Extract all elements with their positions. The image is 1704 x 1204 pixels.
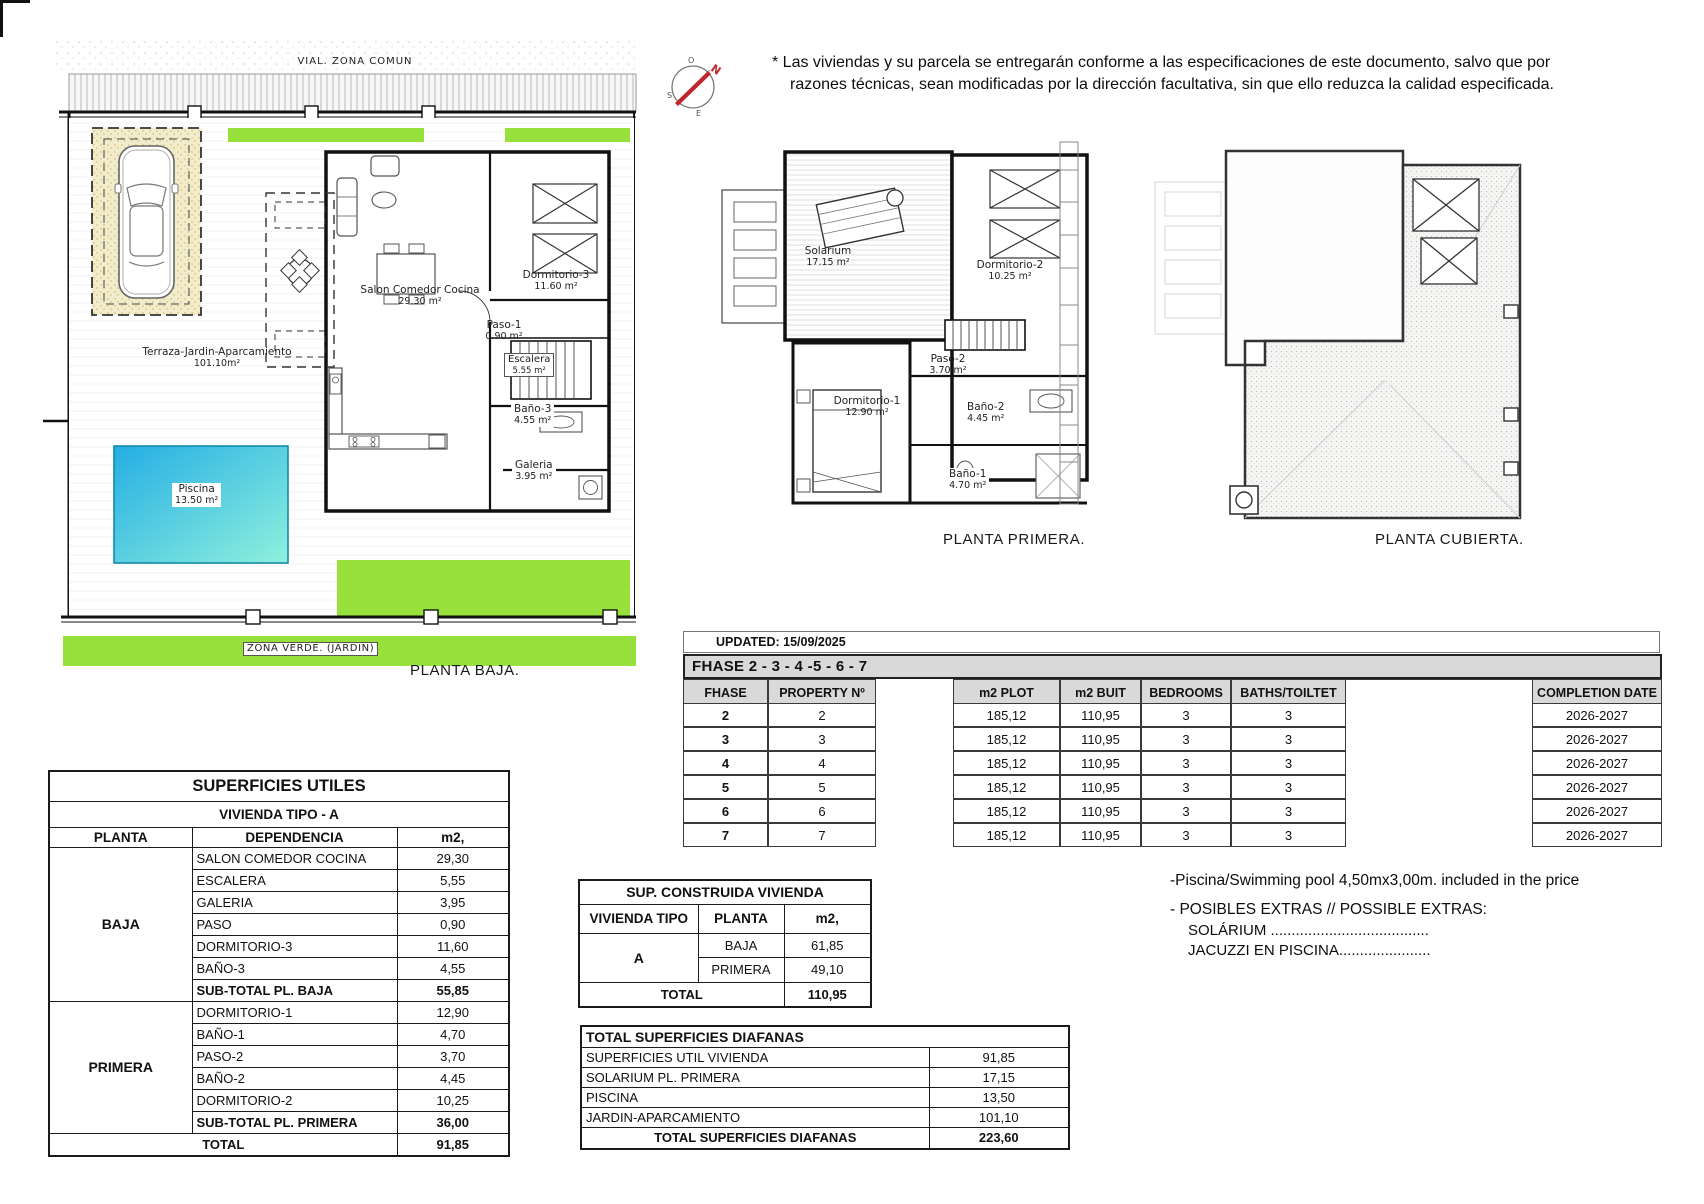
su-row: DORMITORIO-1	[192, 1001, 397, 1023]
col-bedrooms: BEDROOMS	[1141, 679, 1231, 706]
cell: 6	[683, 799, 768, 823]
su-subtotal: SUB-TOTAL PL. PRIMERA	[192, 1111, 397, 1133]
vial-zona-comun-label: VIAL. ZONA COMUN	[293, 56, 417, 68]
su-val: 4,45	[397, 1067, 509, 1089]
su-row: DORMITORIO-2	[192, 1089, 397, 1111]
col-property: PROPERTY Nº	[768, 679, 876, 706]
car-icon	[115, 146, 178, 298]
cell: 2026-2027	[1532, 703, 1662, 727]
cell: 3	[1141, 823, 1231, 847]
extra-solarium: SOLÁRIUM ...............................…	[1188, 922, 1429, 939]
su-subtotal-val: 55,85	[397, 979, 509, 1001]
su-col-dep: DEPENDENCIA	[192, 827, 397, 847]
col-completion: COMPLETION DATE	[1532, 679, 1662, 706]
su-row: BAÑO-1	[192, 1023, 397, 1045]
planta-baja-title: PLANTA BAJA.	[410, 662, 519, 679]
cell: 2	[768, 703, 876, 727]
phase-band: FHASE 2 - 3 - 4 -5 - 6 - 7	[683, 654, 1662, 679]
cell: 2026-2027	[1532, 751, 1662, 775]
su-subtotal-val: 36,00	[397, 1111, 509, 1133]
cell: 2	[683, 703, 768, 727]
planta-primera-drawing	[720, 138, 1100, 518]
stairs	[945, 320, 1025, 350]
planta-cubierta-drawing	[1055, 140, 1535, 525]
bano2-label: Baño-24.45 m²	[964, 401, 1007, 425]
df-val: 91,85	[929, 1047, 1069, 1067]
su-row: BAÑO-2	[192, 1067, 397, 1089]
sc-col-m2: m2,	[784, 904, 871, 933]
cell: 110,95	[1060, 799, 1141, 823]
compass-icon: N O S E	[664, 54, 724, 118]
cell: 2026-2027	[1532, 775, 1662, 799]
cell: 3	[1141, 703, 1231, 727]
su-row: BAÑO-3	[192, 957, 397, 979]
planta-cubierta-title: PLANTA CUBIERTA.	[1375, 531, 1524, 548]
lawn-strip-right	[505, 128, 630, 142]
svg-text:E: E	[696, 109, 701, 118]
cell: 2026-2027	[1532, 727, 1662, 751]
su-val: 11,60	[397, 935, 509, 957]
plan-sheet: { "disclaimer": { "line1": "* Las vivien…	[0, 0, 1704, 1204]
salon-label: Salon Comedor Cocina29.30 m²	[358, 284, 482, 308]
cell: 2026-2027	[1532, 823, 1662, 847]
sc-row: BAJA	[698, 933, 784, 957]
cell: 110,95	[1060, 823, 1141, 847]
cell: 3	[1231, 703, 1346, 727]
pool-note: -Piscina/Swimming pool 4,50mx3,00m. incl…	[1170, 872, 1579, 890]
df-val: 13,50	[929, 1087, 1069, 1107]
cell: 5	[683, 775, 768, 799]
su-subtitle: VIVIENDA TIPO - A	[49, 801, 509, 827]
sc-val: 49,10	[784, 957, 871, 982]
su-total-val: 91,85	[397, 1133, 509, 1156]
cell: 3	[1141, 799, 1231, 823]
updated-date: UPDATED: 15/09/2025	[683, 631, 1660, 653]
sc-title: SUP. CONSTRUIDA VIVIENDA	[579, 880, 871, 904]
df-total-val: 223,60	[929, 1127, 1069, 1149]
cell: 110,95	[1060, 703, 1141, 727]
cell: 7	[683, 823, 768, 847]
su-total: TOTAL	[49, 1133, 397, 1156]
col-fhase: FHASE	[683, 679, 768, 706]
superficies-utiles-table: SUPERFICIES UTILES VIVIENDA TIPO - A PLA…	[48, 770, 510, 1157]
svg-text:O: O	[688, 56, 694, 65]
df-val: 101,10	[929, 1107, 1069, 1127]
su-val: 12,90	[397, 1001, 509, 1023]
su-val: 29,30	[397, 847, 509, 869]
sc-total: TOTAL	[579, 982, 784, 1007]
dormitorio1-label: Dormitorio-112.90 m²	[824, 395, 910, 419]
phase-grid: FHASE PROPERTY Nº m2 PLOT m2 BUIT BEDROO…	[683, 679, 1662, 847]
cell: 185,12	[953, 751, 1060, 775]
df-val: 17,15	[929, 1067, 1069, 1087]
su-val: 4,70	[397, 1023, 509, 1045]
df-total: TOTAL SUPERFICIES DIAFANAS	[581, 1127, 929, 1149]
cell: 3	[1231, 727, 1346, 751]
su-val: 3,95	[397, 891, 509, 913]
df-row: PISCINA	[581, 1087, 929, 1107]
cell: 3	[1231, 799, 1346, 823]
su-subtotal: SUB-TOTAL PL. BAJA	[192, 979, 397, 1001]
su-col-m2: m2,	[397, 827, 509, 847]
cell: 185,12	[953, 799, 1060, 823]
su-row: PASO	[192, 913, 397, 935]
df-row: JARDIN-APARCAMIENTO	[581, 1107, 929, 1127]
df-row: SOLARIUM PL. PRIMERA	[581, 1067, 929, 1087]
dormitorio3-label: Dormitorio-311.60 m²	[516, 269, 596, 293]
lawn-patch	[337, 560, 630, 616]
su-val: 10,25	[397, 1089, 509, 1111]
col-baths: BATHS/TOILTET	[1231, 679, 1346, 706]
cell: 185,12	[953, 775, 1060, 799]
paso1-label: Paso-10.90 m²	[478, 319, 530, 343]
cell: 3	[1141, 727, 1231, 751]
cell: 3	[1141, 751, 1231, 775]
su-row: DORMITORIO-3	[192, 935, 397, 957]
col-built: m2 BUIT	[1060, 679, 1141, 706]
cell: 3	[1141, 775, 1231, 799]
galeria-label: Galeria3.95 m²	[512, 459, 556, 483]
roof-terrace	[1226, 151, 1403, 365]
diafanas-table: TOTAL SUPERFICIES DIAFANAS SUPERFICIES U…	[580, 1025, 1070, 1150]
cell: 6	[768, 799, 876, 823]
escalera-label: Escalera 5.55 m²	[504, 353, 554, 377]
su-val: 5,55	[397, 869, 509, 891]
su-row: GALERIA	[192, 891, 397, 913]
planta-primera-title: PLANTA PRIMERA.	[943, 531, 1085, 548]
su-group-baja: BAJA	[49, 847, 192, 1001]
cell: 4	[683, 751, 768, 775]
cell: 2026-2027	[1532, 799, 1662, 823]
extra-jacuzzi: JACUZZI EN PISCINA......................	[1188, 942, 1431, 959]
su-row: PASO-2	[192, 1045, 397, 1067]
cell: 3	[768, 727, 876, 751]
sheet-corner-mark-h	[0, 0, 30, 3]
sc-val: 61,85	[784, 933, 871, 957]
df-title: TOTAL SUPERFICIES DIAFANAS	[581, 1026, 1069, 1047]
zona-verde-label: ZONA VERDE. (JARDIN)	[243, 642, 378, 656]
disclaimer-line2: razones técnicas, sean modificadas por l…	[790, 74, 1642, 96]
cell: 3	[683, 727, 768, 751]
cell: 3	[1231, 775, 1346, 799]
disclaimer: * Las viviendas y su parcela se entregar…	[772, 52, 1642, 96]
cell: 3	[1231, 823, 1346, 847]
cell: 110,95	[1060, 751, 1141, 775]
paso2-label: Paso-23.70 m²	[920, 353, 976, 377]
sc-row: PRIMERA	[698, 957, 784, 982]
su-val: 0,90	[397, 913, 509, 935]
su-row: ESCALERA	[192, 869, 397, 891]
sup-construida-table: SUP. CONSTRUIDA VIVIENDA VIVIENDA TIPO P…	[578, 879, 872, 1008]
df-row: SUPERFICIES UTIL VIVIENDA	[581, 1047, 929, 1067]
su-val: 3,70	[397, 1045, 509, 1067]
sc-total-val: 110,95	[784, 982, 871, 1007]
piscina-label: Piscina13.50 m²	[172, 483, 221, 507]
su-col-planta: PLANTA	[49, 827, 192, 847]
terraza-label: Terraza-Jardin-Aparcamiento101.10m²	[132, 346, 302, 370]
cell: 185,12	[953, 727, 1060, 751]
sc-col-planta: PLANTA	[698, 904, 784, 933]
cell: 110,95	[1060, 775, 1141, 799]
su-row: SALON COMEDOR COCINA	[192, 847, 397, 869]
bano3-label: Baño-34.55 m²	[511, 403, 554, 427]
dormitorio2-label: Dormitorio-210.25 m²	[964, 259, 1056, 283]
cell: 4	[768, 751, 876, 775]
extras-title: - POSIBLES EXTRAS // POSSIBLE EXTRAS:	[1170, 901, 1487, 919]
sc-col-tipo: VIVIENDA TIPO	[579, 904, 698, 933]
sheet-corner-mark	[0, 0, 3, 37]
su-title: SUPERFICIES UTILES	[49, 771, 509, 801]
svg-text:S: S	[667, 91, 672, 100]
cell: 5	[768, 775, 876, 799]
parking-area	[92, 128, 201, 315]
lawn-strip-left	[228, 128, 424, 142]
bano1-label: Baño-14.70 m²	[946, 468, 989, 492]
sc-tipo: A	[579, 933, 698, 982]
cell: 185,12	[953, 703, 1060, 727]
cell: 7	[768, 823, 876, 847]
cell: 185,12	[953, 823, 1060, 847]
col-plot: m2 PLOT	[953, 679, 1060, 706]
cell: 3	[1231, 751, 1346, 775]
su-group-primera: PRIMERA	[49, 1001, 192, 1133]
disclaimer-line1: * Las viviendas y su parcela se entregar…	[772, 52, 1642, 74]
cell: 110,95	[1060, 727, 1141, 751]
solarium-label: Solarium17.15 m²	[795, 245, 861, 269]
su-val: 4,55	[397, 957, 509, 979]
